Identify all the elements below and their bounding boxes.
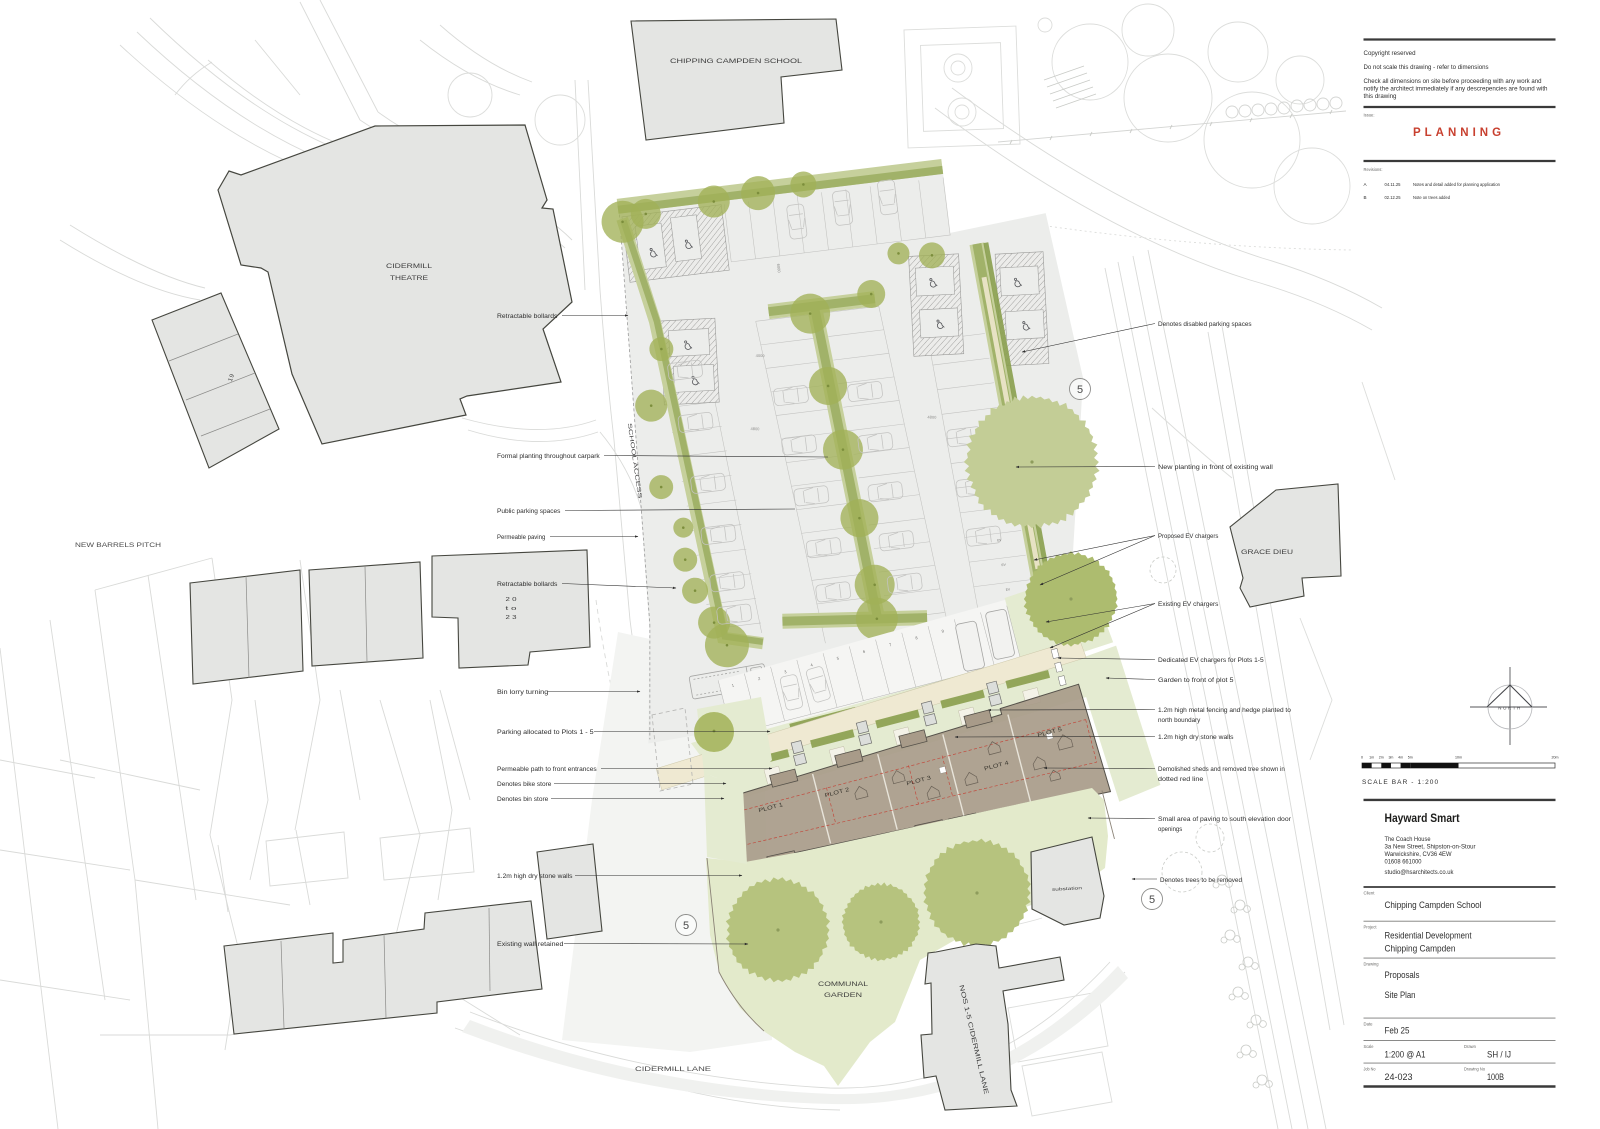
svg-text:CIDERMILL: CIDERMILL	[386, 263, 433, 270]
svg-text:1:200 @ A1: 1:200 @ A1	[1385, 1050, 1426, 1060]
svg-text:100B: 100B	[1487, 1072, 1504, 1082]
svg-text:GARDEN: GARDEN	[824, 992, 863, 999]
svg-text:1.2m high dry stone walls: 1.2m high dry stone walls	[497, 873, 573, 880]
svg-text:Feb 25: Feb 25	[1385, 1026, 1410, 1036]
svg-text:4800: 4800	[750, 426, 760, 431]
svg-text:notify the architect immediate: notify the architect immediately if any …	[1364, 86, 1548, 93]
svg-text:this drawing: this drawing	[1364, 93, 1397, 100]
svg-text:20m: 20m	[1552, 756, 1559, 760]
svg-text:CHIPPING CAMPDEN SCHOOL: CHIPPING CAMPDEN SCHOOL	[670, 58, 803, 65]
svg-text:Retractable bollards: Retractable bollards	[497, 313, 558, 320]
svg-text:Garden to front of plot 5: Garden to front of plot 5	[1158, 677, 1234, 684]
svg-text:5: 5	[683, 920, 689, 932]
svg-text:04.11.25: 04.11.25	[1385, 182, 1401, 187]
svg-text:Do not scale this drawing - re: Do not scale this drawing - refer to dim…	[1364, 64, 1490, 71]
svg-text:Notes and detail added for pla: Notes and detail added for planning appl…	[1413, 182, 1500, 187]
svg-text:Date: Date	[1364, 1022, 1374, 1027]
svg-text:0: 0	[1361, 756, 1363, 760]
svg-text:dotted red line: dotted red line	[1158, 776, 1204, 783]
svg-text:5m: 5m	[1408, 756, 1413, 760]
svg-text:2 0: 2 0	[506, 597, 517, 603]
svg-text:2m: 2m	[1379, 756, 1384, 760]
svg-text:Retractable bollards: Retractable bollards	[497, 581, 558, 588]
svg-text:Hayward Smart: Hayward Smart	[1385, 813, 1460, 825]
svg-text:B: B	[1364, 195, 1367, 200]
svg-text:Permeable path to front entran: Permeable path to front entrances	[497, 766, 597, 773]
svg-text:COMMUNAL: COMMUNAL	[818, 981, 869, 988]
svg-text:Bin lorry turning: Bin lorry turning	[497, 689, 549, 696]
svg-text:New planting in front of exist: New planting in front of existing wall	[1158, 464, 1273, 471]
svg-text:GRACE DIEU: GRACE DIEU	[1241, 549, 1293, 556]
svg-text:4800: 4800	[927, 414, 937, 419]
svg-text:Demolished sheds and removed t: Demolished sheds and removed tree shown …	[1158, 766, 1285, 773]
svg-text:3m: 3m	[1388, 756, 1393, 760]
svg-text:Denotes bike store: Denotes bike store	[497, 781, 552, 788]
svg-text:Copyright reserved: Copyright reserved	[1364, 50, 1416, 57]
svg-text:24-023: 24-023	[1385, 1072, 1413, 1082]
svg-text:Warwickshire, CV36 4EW: Warwickshire, CV36 4EW	[1385, 851, 1453, 858]
svg-text:Drawn: Drawn	[1464, 1044, 1477, 1049]
svg-text:Client: Client	[1364, 891, 1376, 896]
svg-text:Note on trees added: Note on trees added	[1413, 195, 1450, 200]
svg-text:1m: 1m	[1369, 756, 1374, 760]
svg-text:Project: Project	[1364, 925, 1378, 930]
svg-text:3a New Street, Shipston-on-Sto: 3a New Street, Shipston-on-Stour	[1385, 844, 1477, 851]
svg-text:Scale: Scale	[1364, 1044, 1375, 1049]
svg-text:Chipping Campden: Chipping Campden	[1385, 944, 1456, 954]
svg-text:5: 5	[1149, 894, 1155, 906]
svg-text:Formal planting throughout car: Formal planting throughout carpark	[497, 453, 600, 460]
svg-text:SH / IJ: SH / IJ	[1487, 1050, 1511, 1060]
svg-text:4000: 4000	[756, 353, 766, 358]
svg-text:Denotes bin store: Denotes bin store	[497, 796, 549, 803]
svg-text:Job No: Job No	[1364, 1067, 1377, 1072]
svg-text:10m: 10m	[1455, 756, 1462, 760]
svg-text:Drawing No: Drawing No	[1464, 1067, 1486, 1072]
svg-text:Revisions:: Revisions:	[1364, 167, 1383, 172]
svg-text:Dedicated EV chargers for Plot: Dedicated EV chargers for Plots 1-5	[1158, 657, 1264, 664]
svg-text:4m: 4m	[1398, 756, 1403, 760]
svg-text:01608 661000: 01608 661000	[1385, 859, 1422, 866]
svg-text:Site Plan: Site Plan	[1385, 990, 1416, 1000]
svg-text:studio@hsarchitects.co.uk: studio@hsarchitects.co.uk	[1385, 869, 1455, 876]
svg-text:5: 5	[1077, 384, 1083, 396]
svg-text:CIDERMILL LANE: CIDERMILL LANE	[635, 1066, 711, 1073]
svg-text:02.12.25: 02.12.25	[1385, 195, 1401, 200]
svg-text:Existing EV chargers: Existing EV chargers	[1158, 601, 1219, 608]
svg-text:The Coach House: The Coach House	[1385, 836, 1431, 843]
svg-text:2 3: 2 3	[506, 615, 517, 621]
svg-text:1.2m high dry stone walls: 1.2m high dry stone walls	[1158, 734, 1234, 741]
svg-text:PLANNING: PLANNING	[1413, 127, 1505, 139]
svg-text:Public parking spaces: Public parking spaces	[497, 508, 561, 515]
svg-text:NEW BARRELS PITCH: NEW BARRELS PITCH	[75, 542, 161, 549]
svg-text:Parking allocated to Plots 1 -: Parking allocated to Plots 1 - 5	[497, 729, 594, 736]
svg-text:THEATRE: THEATRE	[390, 275, 428, 282]
svg-text:1.2m high metal fencing and he: 1.2m high metal fencing and hedge plante…	[1158, 707, 1291, 714]
svg-text:Check all dimensions on site b: Check all dimensions on site before proc…	[1364, 78, 1542, 85]
svg-text:Chipping Campden School: Chipping Campden School	[1385, 900, 1482, 910]
svg-text:Existing wall retained: Existing wall retained	[497, 941, 564, 948]
svg-text:Denotes disabled parking space: Denotes disabled parking spaces	[1158, 321, 1252, 328]
svg-text:Permeable paving: Permeable paving	[497, 534, 546, 541]
svg-text:Denotes trees to be removed: Denotes trees to be removed	[1160, 877, 1242, 884]
svg-text:Drawing: Drawing	[1364, 962, 1380, 967]
svg-text:SCALE BAR - 1:200: SCALE BAR - 1:200	[1362, 779, 1439, 786]
svg-text:north boundary: north boundary	[1158, 717, 1201, 724]
svg-text:Issue:: Issue:	[1364, 113, 1375, 118]
svg-text:t o: t o	[506, 606, 517, 612]
svg-text:Small area of paving to south: Small area of paving to south elevation …	[1158, 816, 1292, 823]
svg-text:Proposals: Proposals	[1385, 970, 1420, 980]
svg-text:NORTH: NORTH	[1498, 706, 1522, 711]
svg-text:Residential Development: Residential Development	[1385, 931, 1472, 941]
svg-text:Proposed EV chargers: Proposed EV chargers	[1158, 533, 1219, 540]
svg-text:openings: openings	[1158, 826, 1183, 833]
